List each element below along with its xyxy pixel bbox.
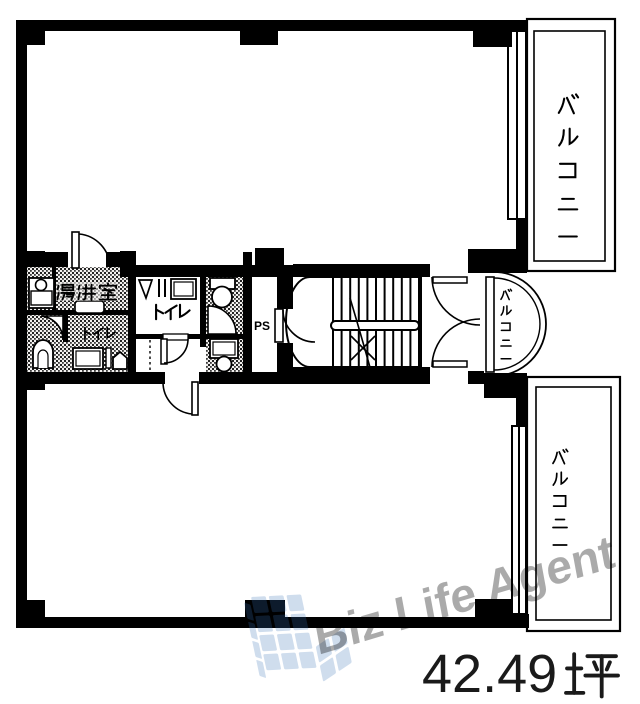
- svg-text:PS: PS: [254, 319, 270, 333]
- svg-text:42.49: 42.49: [422, 644, 557, 704]
